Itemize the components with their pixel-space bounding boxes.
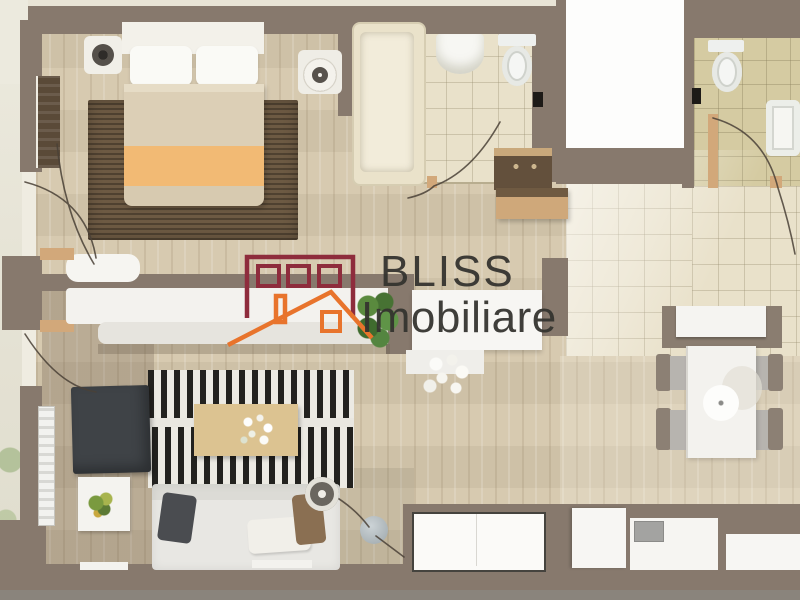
watermark-line1: BLISS (380, 250, 515, 294)
bathroom1-cabinet (494, 148, 552, 190)
bedroom-bench (66, 254, 140, 282)
sofa-pillow-dark (157, 492, 197, 544)
bathroom2-toilet-tank (708, 40, 744, 52)
dining-chair-back-tr (768, 354, 783, 391)
bedroom-wardrobe (36, 76, 60, 168)
logo-window-2 (288, 266, 309, 286)
kitchen-counter-right (726, 534, 800, 570)
dining-plate (703, 385, 739, 421)
nightstand-lamp-left (92, 44, 114, 66)
tv-cabinet (412, 512, 546, 572)
wall-void-bottom (566, 146, 692, 184)
logo-roof-window (322, 312, 340, 331)
floorplan-render: BLISS Imobiliare (0, 0, 800, 600)
wall-left-mid-block (2, 256, 42, 330)
bathroom2-sink (766, 100, 800, 156)
nightstand-lamp-right (303, 58, 337, 92)
bed-pillow-right (196, 46, 258, 86)
watermark-line2: Imobiliare (361, 296, 557, 340)
bathroom2-toilet-bowl (712, 52, 742, 92)
side-table-plant (86, 491, 116, 519)
dining-chair-back-br (768, 408, 783, 450)
bathroom1-toilet-bowl (502, 46, 532, 86)
hallway-shelf (496, 188, 568, 219)
bathroom2-door-panel (708, 114, 718, 188)
dining-chair-back-bl (656, 408, 671, 450)
tv-cabinet-seam (476, 514, 477, 566)
bathroom1-door-post (427, 176, 437, 188)
bathtub-inner (360, 32, 414, 172)
bathroom1-cabinet-knobs (512, 164, 538, 169)
wall-top-right (682, 0, 800, 38)
wall-top-left (28, 6, 558, 34)
kitchen-sink (634, 521, 664, 542)
bathroom2-light-switch (692, 88, 701, 104)
logo-window-1 (258, 266, 279, 286)
wall-bottom-strip (0, 590, 800, 600)
door-panel-bedroom (40, 248, 74, 260)
logo-roof (228, 292, 372, 345)
console-bouquet (418, 352, 480, 398)
bathroom1-light-switch (533, 92, 543, 107)
sofa-lamp-top (305, 477, 339, 511)
bliss-house-logo-icon (222, 252, 374, 353)
coffee-table-flowers (236, 412, 280, 448)
bathroom1-sink (436, 34, 484, 74)
living-radiator (38, 406, 55, 526)
windowsill-left (80, 562, 128, 570)
bed-pillow-left (130, 46, 192, 86)
bed-blanket (124, 84, 264, 206)
bathroom1-toilet-tank (498, 34, 536, 46)
dining-sideboard-top (676, 306, 766, 337)
void-white-area (566, 0, 684, 148)
logo-window-3 (319, 266, 340, 286)
kitchen-cabinet-left (572, 508, 626, 568)
dining-chair-back-tl (656, 354, 671, 391)
floor-stool-disc (360, 516, 388, 544)
bathroom2-door-post (770, 176, 782, 188)
armchair-dark (71, 385, 151, 474)
windowsill-center (252, 560, 312, 568)
